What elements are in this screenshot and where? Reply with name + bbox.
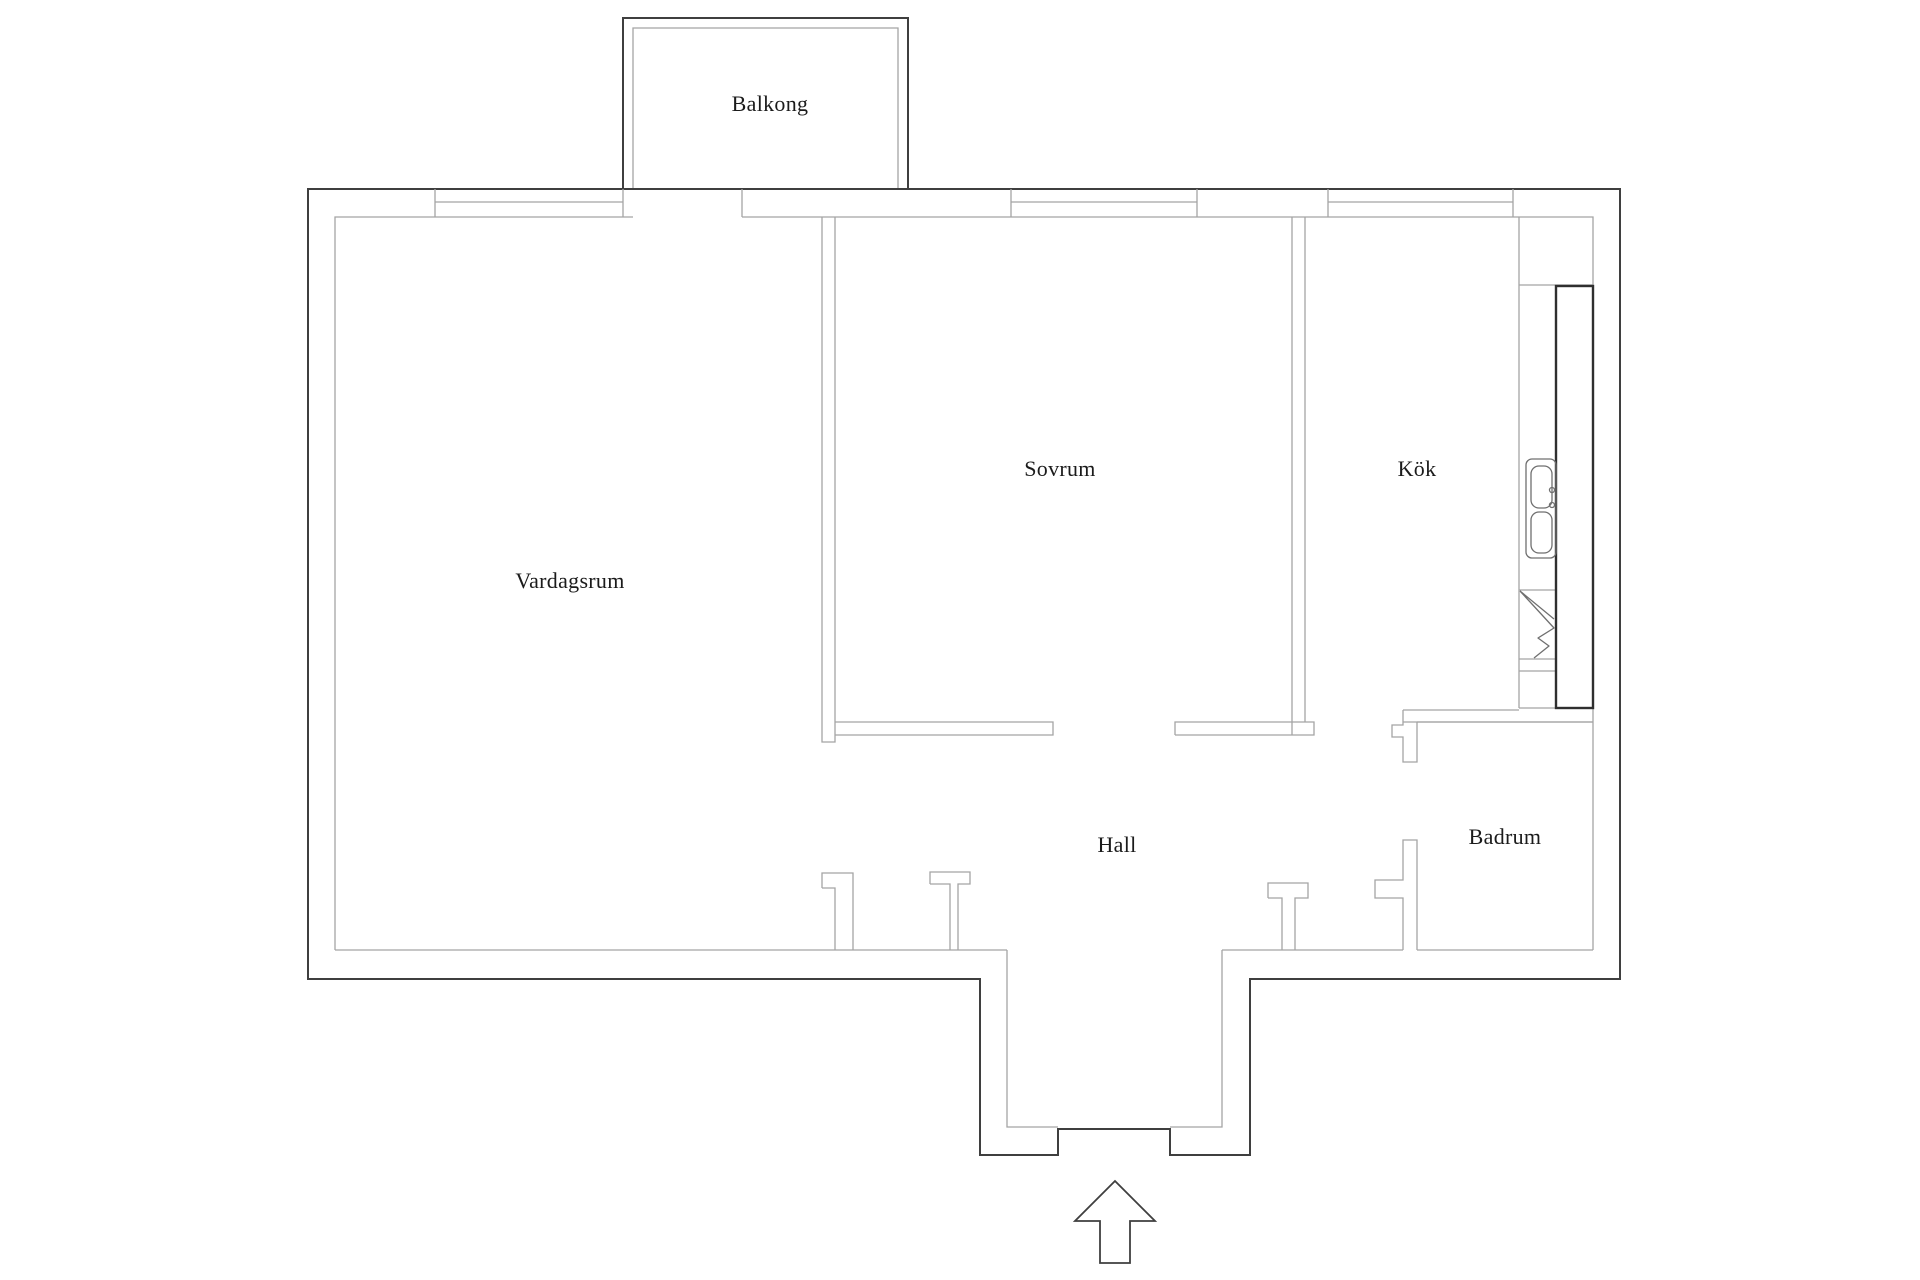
door-pier-badrum <box>1268 883 1308 950</box>
sovrum-south-wall-right <box>1175 722 1314 735</box>
divider-vardagsrum-sovrum <box>822 217 835 742</box>
floor-plan: Balkong Vardagsrum Sovrum Kök Hall Badru… <box>0 0 1920 1280</box>
kitchen-sink <box>1526 459 1556 558</box>
badrum-west-wall-upper <box>1392 710 1417 762</box>
room-label-balkong: Balkong <box>732 91 809 116</box>
outer-wall <box>308 189 1620 1155</box>
room-label-vardagsrum: Vardagsrum <box>515 568 624 593</box>
window-sovrum <box>1011 189 1197 217</box>
badrum-west-wall-lower <box>1375 840 1417 950</box>
room-label-hall: Hall <box>1097 832 1136 857</box>
window-vardagsrum <box>435 189 623 217</box>
sink-basin-top <box>1531 466 1552 508</box>
sovrum-south-wall-left <box>835 722 1053 735</box>
vestibule-inner <box>1007 950 1222 1127</box>
room-label-kok: Kök <box>1398 456 1437 481</box>
entrance-arrow-icon <box>1075 1181 1155 1263</box>
appliance-glyph <box>1520 591 1554 658</box>
room-label-sovrum: Sovrum <box>1024 456 1095 481</box>
door-pier-a <box>822 873 853 950</box>
divider-sovrum-kok <box>1292 217 1305 735</box>
floor-plan-canvas: Balkong Vardagsrum Sovrum Kök Hall Badru… <box>0 0 1920 1280</box>
door-pier-b <box>930 872 970 950</box>
kitchen-south-wall <box>1403 710 1593 722</box>
room-label-badrum: Badrum <box>1469 824 1542 849</box>
window-kok <box>1328 189 1513 217</box>
kitchen-counter <box>1556 286 1593 708</box>
sink-basin-bottom <box>1531 512 1552 553</box>
